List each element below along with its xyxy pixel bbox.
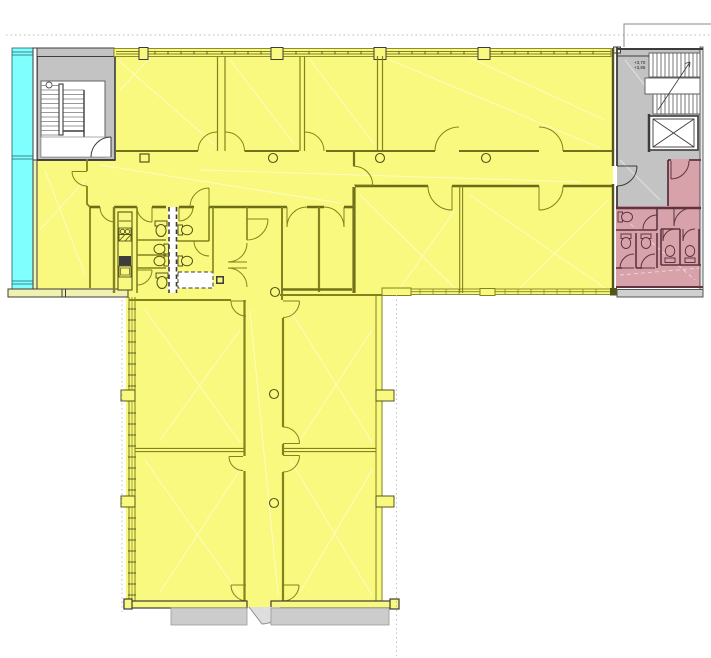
svg-text:+3,85: +3,85 xyxy=(634,65,646,70)
